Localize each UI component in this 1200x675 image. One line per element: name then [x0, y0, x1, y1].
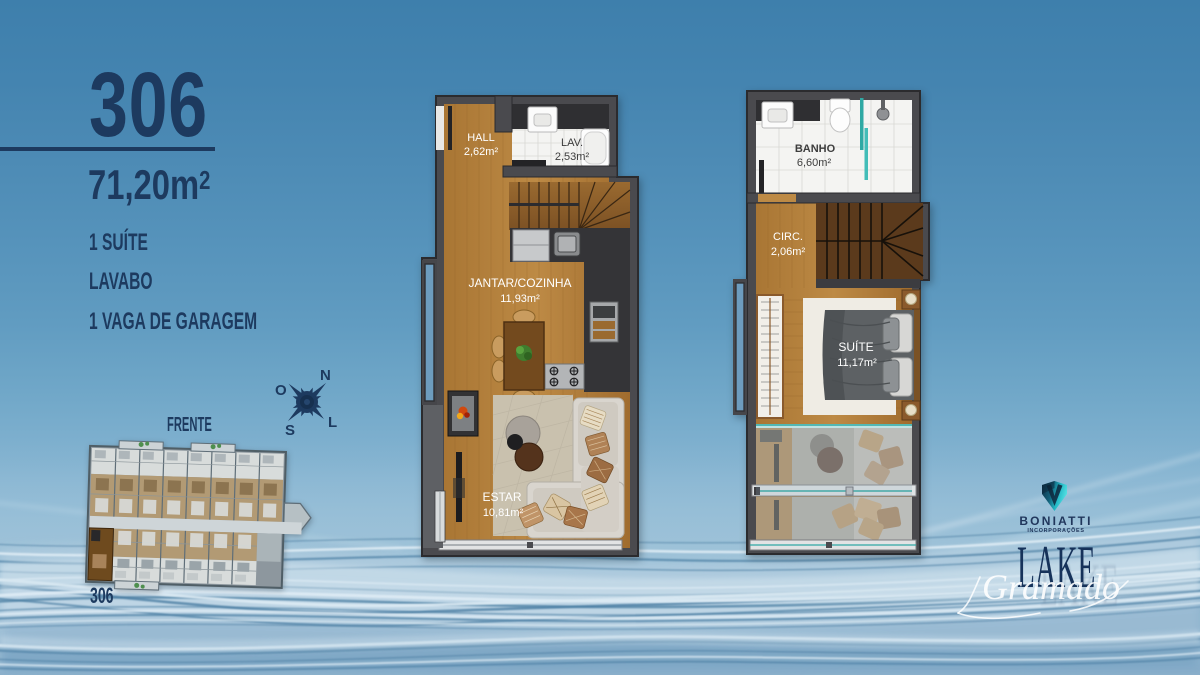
svg-text:L: L: [328, 414, 337, 431]
svg-text:2,06m²: 2,06m²: [771, 246, 806, 258]
svg-text:N: N: [320, 367, 331, 384]
svg-text:ESTAR: ESTAR: [482, 490, 521, 504]
svg-text:10,81m²: 10,81m²: [483, 507, 524, 519]
svg-text:O: O: [275, 382, 287, 399]
svg-text:2,62m²: 2,62m²: [464, 146, 499, 158]
svg-text:11,93m²: 11,93m²: [500, 293, 540, 305]
svg-text:BANHO: BANHO: [795, 143, 836, 155]
svg-text:LAV.: LAV.: [561, 137, 583, 149]
svg-text:11,17m²: 11,17m²: [837, 357, 877, 369]
svg-text:2,53m²: 2,53m²: [555, 151, 590, 163]
svg-text:S: S: [285, 422, 295, 439]
svg-text:CIRC.: CIRC.: [773, 231, 803, 243]
svg-text:JANTAR/COZINHA: JANTAR/COZINHA: [468, 276, 571, 290]
svg-text:6,60m²: 6,60m²: [797, 157, 832, 169]
svg-text:HALL: HALL: [467, 132, 495, 144]
svg-text:SUÍTE: SUÍTE: [838, 339, 873, 354]
